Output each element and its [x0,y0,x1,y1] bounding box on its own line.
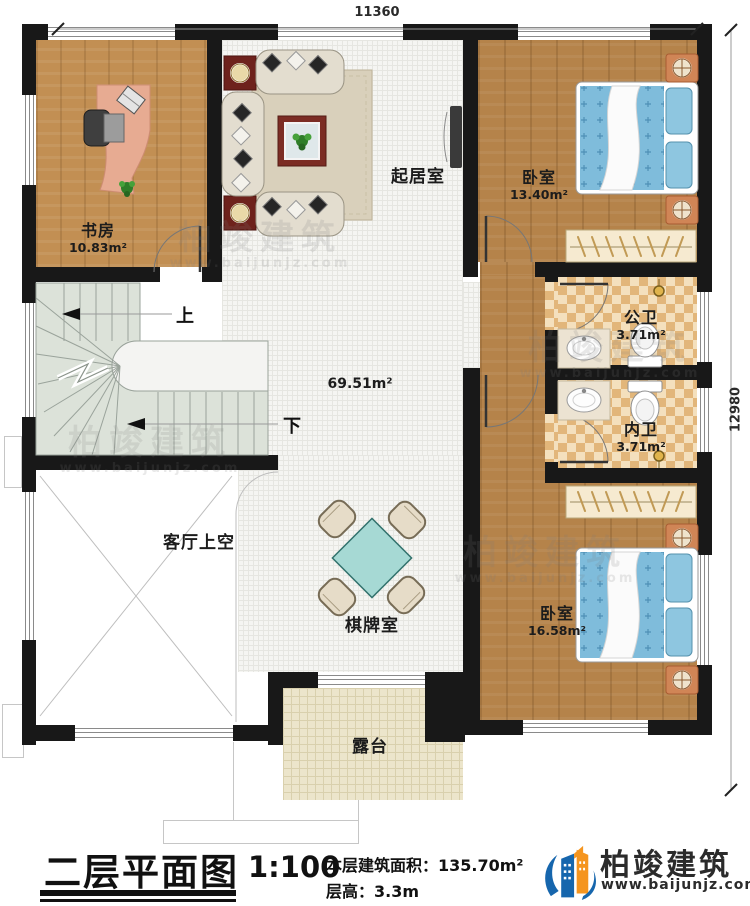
chair [315,497,359,541]
label-bedroom1: 卧室 13.40m² [489,168,589,202]
wardrobe [566,230,696,262]
title-underline-thick [40,890,236,896]
bedroom1-door [486,216,532,262]
room-name: 客厅上空 [134,533,264,553]
label-bedroom2: 卧室 16.58m² [507,604,607,638]
brand-logo-icon [538,842,596,900]
room-name: 起居室 [368,167,468,187]
dimension-right: 12980 [729,370,744,450]
monitor [104,114,124,142]
room-name: 卧室 [489,168,589,187]
staircase [36,283,278,455]
bedroom2-furniture [566,486,698,694]
floor-area-line: 本层建筑面积：135.70m² [326,852,523,876]
chair [385,498,429,542]
toilet-tank [628,356,662,367]
room-name: 内卫 [591,420,691,439]
pillow [666,88,692,134]
brand-url: www.baijunjz.com [601,877,750,893]
chair [315,575,359,619]
room-area: 3.71m² [591,439,691,454]
room-name: 棋牌室 [312,616,432,636]
game-table-set [315,497,429,619]
plan-title: 二层平面图 [44,842,239,896]
label-living: 起居室 [368,167,468,187]
stair-down-label: 下 [283,412,301,438]
study-plant [119,181,135,197]
sofa-set [222,50,372,236]
toilet-tank [628,381,662,392]
label-inner-bath: 内卫 3.71m² [591,420,691,454]
label-terrace: 露台 [320,737,420,757]
room-name: 露台 [320,737,420,757]
room-name: 公卫 [591,308,691,327]
floor-plan: 柏竣建筑 www.baijunjz.com 柏竣建筑 www.baijunjz.… [0,0,750,906]
bedroom2-corridor-door [486,375,538,427]
room-area: 10.83m² [48,240,148,255]
room-area: 16.58m² [507,623,607,638]
floor-area-label: 本层建筑面积： [326,856,438,875]
pillow [666,608,692,656]
floor-height-line: 层高：3.3m [326,878,419,902]
room-name: 卧室 [507,604,607,623]
pillow [666,554,692,602]
floor-height-value: 3.3m [374,882,419,901]
wardrobe [566,486,696,518]
floor-height-label: 层高： [326,882,374,901]
stair-up-label: 上 [176,302,194,328]
living-void-marks [40,472,278,722]
bedroom1-furniture [566,54,698,262]
study-desk-set [84,85,150,197]
title-underline-thin [40,899,236,902]
room-area: 3.71m² [591,327,691,342]
label-public-bath: 公卫 3.71m² [591,308,691,342]
room-area: 69.51m² [310,377,410,392]
floor-drain [654,286,664,296]
label-hall-area: 69.51m² [310,377,410,392]
label-living-void: 客厅上空 [134,533,264,553]
dimension-top: 11360 [332,5,422,20]
label-game-room: 棋牌室 [312,616,432,636]
floor-area-value: 135.70m² [438,856,523,875]
study-door [154,226,200,272]
pillow [666,142,692,188]
room-area: 13.40m² [489,187,589,202]
tv [444,106,462,168]
label-study: 书房 10.83m² [48,221,148,255]
room-name: 书房 [48,221,148,240]
